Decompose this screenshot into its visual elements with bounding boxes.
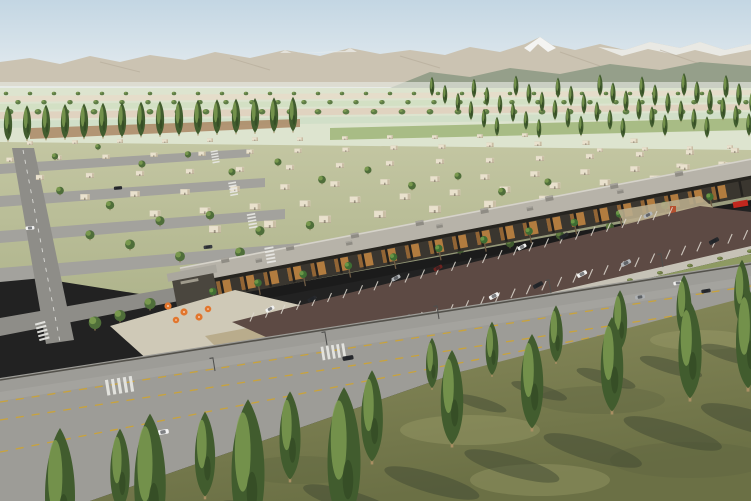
distant-tree-row <box>35 109 42 114</box>
house <box>436 159 444 164</box>
yard-tree <box>114 310 125 322</box>
distant-tree-row <box>316 92 321 96</box>
house <box>550 182 561 189</box>
distant-tree-row <box>148 92 153 96</box>
house <box>630 166 639 172</box>
patio-umbrella <box>195 313 202 320</box>
distant-tree-row <box>301 100 306 104</box>
distant-tree-row <box>268 92 273 96</box>
distant-tree-row <box>340 92 345 96</box>
house <box>480 174 489 180</box>
house <box>336 163 344 168</box>
house <box>680 164 689 170</box>
distant-tree-row <box>405 100 410 104</box>
distant-tree-row <box>343 109 350 114</box>
distant-tree-row <box>4 92 9 96</box>
distant-tree-row <box>220 92 225 96</box>
house <box>597 148 603 152</box>
house <box>186 169 194 174</box>
distant-tree-row <box>93 100 98 104</box>
house <box>586 154 594 159</box>
distant-tree-row <box>743 100 748 104</box>
house <box>162 139 168 143</box>
house <box>636 152 644 157</box>
distant-tree-row <box>532 92 537 96</box>
distant-tree-row <box>327 100 332 104</box>
patio-umbrella <box>164 302 171 309</box>
distant-tree-row <box>52 92 57 96</box>
house <box>430 176 439 182</box>
house <box>642 147 648 151</box>
distant-tree-row <box>412 92 417 96</box>
house <box>102 154 109 159</box>
house <box>350 196 361 203</box>
house <box>264 221 276 228</box>
distant-tree-row <box>436 92 441 96</box>
distant-tree-row <box>244 92 249 96</box>
distant-tree-row <box>15 100 20 104</box>
house <box>117 139 123 143</box>
house <box>250 203 261 210</box>
house <box>429 206 441 213</box>
patio-umbrella <box>205 306 211 312</box>
house <box>380 179 389 185</box>
distant-tree-row <box>431 100 436 104</box>
house <box>150 152 157 157</box>
house <box>600 179 611 186</box>
house <box>330 181 339 187</box>
distant-tree-row <box>203 109 210 114</box>
house <box>198 151 205 156</box>
house <box>580 169 589 175</box>
aerial-rendering <box>0 0 751 501</box>
house <box>387 135 393 139</box>
house <box>236 167 244 172</box>
house <box>207 138 213 142</box>
patio-umbrella <box>173 317 179 323</box>
house <box>136 171 144 176</box>
house <box>246 149 253 154</box>
house <box>522 133 528 137</box>
distant-tree-row <box>587 100 592 104</box>
distant-tree-row <box>460 92 465 96</box>
distant-tree-row <box>67 100 72 104</box>
house <box>400 193 411 200</box>
distant-tree-row <box>399 109 406 114</box>
verge-shrub <box>717 257 723 261</box>
distant-tree-row <box>700 92 705 96</box>
distant-tree-row <box>172 92 177 96</box>
distant-tree-row <box>353 100 358 104</box>
scene-canvas <box>0 0 751 501</box>
house <box>530 171 539 177</box>
house <box>300 200 311 207</box>
distant-tree-row <box>76 92 81 96</box>
house <box>180 189 189 195</box>
distant-tree-row <box>371 109 378 114</box>
house <box>150 210 161 217</box>
distant-tree-row <box>196 92 201 96</box>
patio-umbrella <box>180 308 187 315</box>
house <box>36 175 44 180</box>
house <box>687 146 693 150</box>
verge-shrub <box>687 264 693 268</box>
distant-tree-row <box>427 109 434 114</box>
house <box>130 191 139 197</box>
house <box>432 135 438 139</box>
house <box>374 211 386 218</box>
house <box>486 158 494 163</box>
distant-tree-row <box>379 100 384 104</box>
house <box>386 161 394 166</box>
house <box>630 138 637 143</box>
distant-tree-row <box>28 92 33 96</box>
house <box>486 142 493 147</box>
distant-tree-row <box>315 109 322 114</box>
house <box>27 141 33 145</box>
house <box>477 134 483 138</box>
house <box>731 148 739 153</box>
distant-tree-row <box>91 109 98 114</box>
house <box>438 144 445 149</box>
house <box>286 165 294 170</box>
distant-tree-row <box>628 92 633 96</box>
distant-tree-row <box>147 109 154 114</box>
house <box>209 226 221 233</box>
house <box>252 137 258 141</box>
distant-tree-row <box>259 109 266 114</box>
verge-shrub <box>657 271 663 275</box>
house <box>390 145 397 150</box>
house <box>319 216 331 223</box>
distant-tree-row <box>561 100 566 104</box>
house <box>536 156 544 161</box>
house <box>342 147 349 152</box>
house <box>582 140 589 145</box>
house <box>450 189 461 196</box>
yard-tree <box>144 298 155 310</box>
yard-tree <box>89 317 102 331</box>
distant-tree-row <box>604 92 609 96</box>
distant-tree-row <box>676 92 681 96</box>
house <box>80 194 89 200</box>
house <box>280 184 289 190</box>
house <box>484 201 496 208</box>
distant-tree-row <box>388 92 393 96</box>
house <box>294 148 301 153</box>
house <box>534 141 541 146</box>
distant-tree-row <box>171 100 176 104</box>
distant-tree-row <box>41 100 46 104</box>
house <box>342 136 348 140</box>
distant-tree-row <box>364 92 369 96</box>
distant-tree-row <box>145 100 150 104</box>
house <box>86 173 94 178</box>
house <box>297 137 303 141</box>
house <box>686 150 694 155</box>
distant-tree-row <box>124 92 129 96</box>
distant-tree-row <box>509 100 514 104</box>
distant-tree-row <box>223 100 228 104</box>
distant-tree-row <box>100 92 105 96</box>
house <box>72 140 78 144</box>
distant-tree-row <box>292 92 297 96</box>
distant-tree-row <box>508 92 513 96</box>
house <box>6 157 13 162</box>
